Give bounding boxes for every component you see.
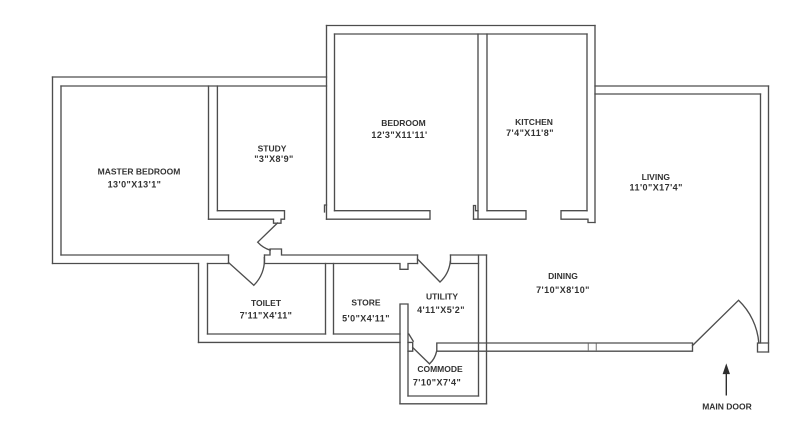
svg-text:MASTER BEDROOM: MASTER BEDROOM (98, 167, 181, 177)
svg-text:7'11"X4'11": 7'11"X4'11" (240, 311, 293, 321)
svg-text:BEDROOM: BEDROOM (381, 118, 425, 128)
svg-text:DINING: DINING (548, 271, 578, 281)
svg-text:7'4"X11'8": 7'4"X11'8" (506, 128, 554, 138)
svg-text:11'0"X17'4": 11'0"X17'4" (630, 183, 683, 193)
svg-text:STUDY: STUDY (258, 144, 287, 154)
svg-text:LIVING: LIVING (642, 172, 671, 182)
svg-text:UTILITY: UTILITY (426, 292, 458, 302)
svg-text:7'10"X8'10": 7'10"X8'10" (536, 285, 590, 295)
svg-text:KITCHEN: KITCHEN (515, 117, 553, 127)
svg-text:"3"X8'9": "3"X8'9" (254, 154, 294, 164)
svg-text:TOILET: TOILET (251, 298, 282, 308)
svg-text:12'3"X11'11': 12'3"X11'11' (371, 130, 427, 140)
svg-text:STORE: STORE (351, 298, 380, 308)
svg-text:7'10"X7'4": 7'10"X7'4" (413, 378, 461, 388)
svg-text:MAIN DOOR: MAIN DOOR (702, 401, 752, 411)
svg-text:COMMODE: COMMODE (417, 364, 463, 374)
svg-text:5'0"X4'11": 5'0"X4'11" (342, 314, 390, 324)
svg-text:13'0"X13'1": 13'0"X13'1" (108, 180, 162, 190)
svg-text:4'11"X5'2": 4'11"X5'2" (417, 305, 465, 315)
